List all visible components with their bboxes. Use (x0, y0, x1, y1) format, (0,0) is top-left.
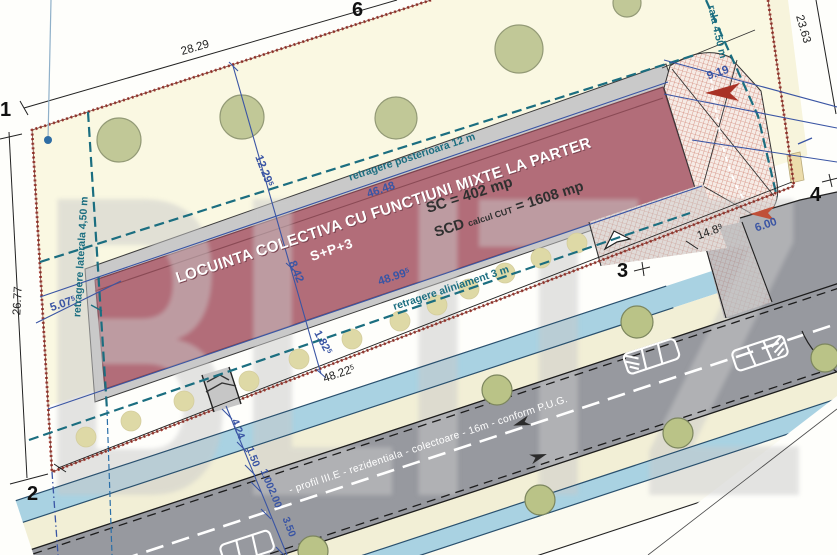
svg-text:6: 6 (352, 0, 363, 21)
svg-text:4: 4 (810, 184, 822, 206)
svg-text:26.77: 26.77 (11, 286, 24, 315)
svg-text:1: 1 (0, 99, 11, 121)
svg-text:2: 2 (27, 483, 38, 505)
svg-text:3: 3 (617, 260, 628, 282)
